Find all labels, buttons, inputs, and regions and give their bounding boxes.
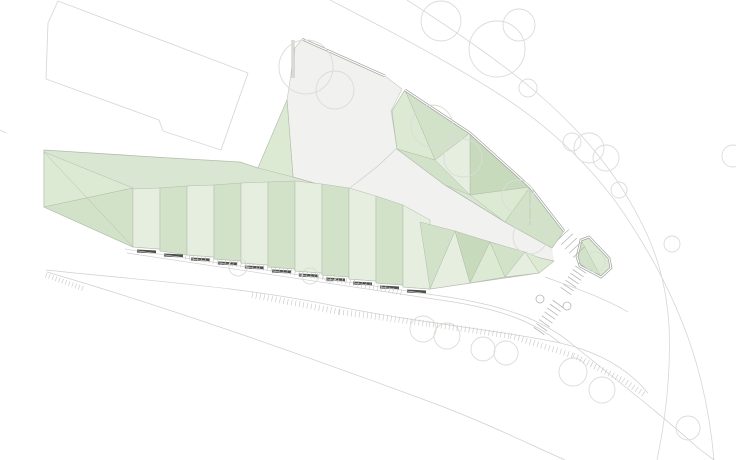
slope-hatch-lower-tick <box>363 312 364 318</box>
slope-hatch-lower-tick <box>371 313 372 319</box>
slope-hatch-upper-tick <box>213 258 214 264</box>
slope-hatch-lower-tick <box>330 307 331 313</box>
slope-hatch-upper-tick <box>377 285 378 291</box>
lower-stair-flight-2-tread <box>550 304 561 311</box>
slope-hatch-lower-tick <box>268 295 269 301</box>
slope-hatch-lower-tick <box>560 349 562 355</box>
slope-hatch-lower-tick <box>375 314 376 320</box>
tree <box>563 133 581 151</box>
slope-hatch-lower-tick <box>252 292 253 298</box>
tree <box>434 323 460 349</box>
slope-hatch-lower-tick <box>283 298 284 304</box>
tree <box>503 9 535 41</box>
facet <box>214 183 241 261</box>
slope-hatch-upper-tick <box>201 256 202 262</box>
facet <box>160 186 187 255</box>
slope-hatch-lower-tick <box>260 294 261 300</box>
slope-hatch-lower-tick <box>403 317 404 323</box>
facet <box>241 182 268 265</box>
facet <box>295 181 322 273</box>
slope-hatch-lower-tick <box>508 333 509 339</box>
slope-hatch-lower-tick <box>395 316 396 322</box>
slope-hatch-left-tick <box>68 281 70 286</box>
slope-hatch-lower-tick <box>590 362 593 367</box>
slope-hatch-lower-tick <box>537 341 539 347</box>
tree <box>410 316 436 342</box>
slope-hatch-left-tick <box>72 282 74 287</box>
building-outline <box>46 1 248 150</box>
slope-hatch-lower-tick <box>635 387 638 392</box>
slope-hatch-left-tick <box>65 280 67 285</box>
slope-hatch-lower-tick <box>399 317 400 323</box>
tree <box>519 79 537 97</box>
slope-hatch-lower-tick <box>323 306 324 312</box>
slope-hatch-lower-tick <box>522 337 524 343</box>
slope-hatch-left-tick <box>75 284 77 289</box>
slope-hatch-lower-tick <box>583 358 586 363</box>
tree <box>722 145 736 167</box>
tree <box>494 341 518 365</box>
slope-hatch-lower-tick <box>632 385 635 390</box>
slope-hatch-lower-tick <box>343 310 344 316</box>
facet <box>268 181 295 269</box>
site-plan-drawing <box>0 0 736 460</box>
slope-hatch-lower-tick <box>334 308 335 314</box>
slope-hatch-left-tick <box>49 274 51 279</box>
slope-hatch-lower-tick <box>407 318 408 324</box>
slope-hatch-lower-tick <box>567 351 569 357</box>
slope-hatch-lower-tick <box>625 380 628 385</box>
slope-hatch-left-tick <box>82 286 84 291</box>
slope-hatch-lower-tick <box>518 335 520 341</box>
lower-stair-flight-2-tread <box>547 308 558 315</box>
slope-hatch-lower-tick <box>256 293 257 299</box>
slope-hatch-lower-tick <box>351 311 352 317</box>
slope-hatch-lower-tick <box>541 343 543 349</box>
slope-hatch-lower-tick <box>379 314 380 320</box>
slope-hatch-lower-tick <box>291 300 292 306</box>
overlook-wrap-path <box>545 277 628 312</box>
slope-hatch-lower-tick <box>548 345 550 351</box>
slope-hatch-lower-tick <box>638 389 641 394</box>
slope-hatch-lower-tick <box>307 303 308 309</box>
stair-post <box>536 295 544 303</box>
slope-hatch-lower-tick <box>303 302 304 308</box>
slope-hatch-lower-tick <box>622 378 625 383</box>
slope-hatch-lower-tick <box>544 344 546 350</box>
facet <box>322 184 349 277</box>
tree <box>559 358 587 386</box>
slope-hatch-lower-tick <box>525 338 527 344</box>
slope-hatch-lower-tick <box>275 297 276 303</box>
slope-hatch-left-tick <box>52 275 54 280</box>
tree <box>593 145 619 171</box>
slope-hatch-lower-tick <box>299 301 300 307</box>
slope-hatch-left-tick <box>62 279 64 284</box>
slope-hatch-lower-tick <box>556 348 558 354</box>
slope-hatch-lower-tick <box>615 374 618 379</box>
slope-hatch-lower-tick <box>315 304 316 310</box>
slope-hatch-upper-tick <box>209 257 210 263</box>
slope-hatch-lower-tick <box>642 391 645 396</box>
slope-hatch-upper-tick <box>373 284 374 290</box>
facet <box>349 188 376 281</box>
slope-hatch-lower-tick <box>355 311 356 317</box>
slope-hatch-lower-tick <box>552 346 554 352</box>
tree <box>664 236 680 252</box>
facet <box>133 188 160 249</box>
lower-stair-flight-2-tread <box>542 316 553 323</box>
facet <box>258 100 293 177</box>
lower-stair-flight-2-tread <box>553 300 564 307</box>
tree <box>471 337 495 361</box>
tree <box>469 21 525 77</box>
lower-stair-flight-2-tread <box>545 312 556 319</box>
slope-hatch-lower-tick <box>619 376 622 381</box>
slope-hatch-upper-tick <box>233 260 234 266</box>
slope-hatch-lower-tick <box>264 294 265 300</box>
slope-hatch-lower-tick <box>597 366 600 371</box>
slope-hatch-lower-tick <box>347 310 348 316</box>
slope-hatch-lower-tick <box>319 305 320 311</box>
boundary-tick <box>0 130 6 133</box>
slope-hatch-left-tick <box>58 278 60 283</box>
slope-hatch-left-tick <box>78 285 80 290</box>
slope-hatch-lower-tick <box>564 350 566 356</box>
slope-hatch-lower-tick <box>529 339 531 345</box>
slope-hatch-upper-tick <box>205 257 206 263</box>
slope-hatch-lower-tick <box>383 315 384 321</box>
slope-hatch-lower-tick <box>594 364 597 369</box>
slope-path-upper <box>46 270 648 393</box>
tree <box>421 1 461 41</box>
slope-hatch-lower-tick <box>311 304 312 310</box>
slope-hatch-lower-tick <box>391 316 392 322</box>
slope-hatch-lower-tick <box>367 313 368 319</box>
tree <box>589 377 615 403</box>
facet <box>187 185 214 257</box>
slope-hatch-lower-tick <box>587 360 590 365</box>
slope-hatch-left-tick <box>55 277 57 282</box>
slope-hatch-lower-tick <box>295 300 296 306</box>
slope-hatch-lower-tick <box>387 315 388 321</box>
slope-hatch-lower-tick <box>359 312 360 318</box>
slope-hatch-upper-tick <box>318 273 319 279</box>
slope-hatch-lower-tick <box>279 297 280 303</box>
slope-hatch-left-tick <box>45 273 47 278</box>
facet <box>376 196 403 285</box>
tree <box>676 416 700 440</box>
slope-hatch-lower-tick <box>628 382 631 387</box>
slope-hatch-lower-tick <box>271 296 272 302</box>
slope-hatch-lower-tick <box>326 307 327 313</box>
slope-hatch-lower-tick <box>287 299 288 305</box>
slope-hatch-lower-tick <box>533 340 535 346</box>
slope-hatch-upper-tick <box>346 278 347 284</box>
stair-post <box>563 302 571 310</box>
site-plan-canvas <box>0 0 736 460</box>
